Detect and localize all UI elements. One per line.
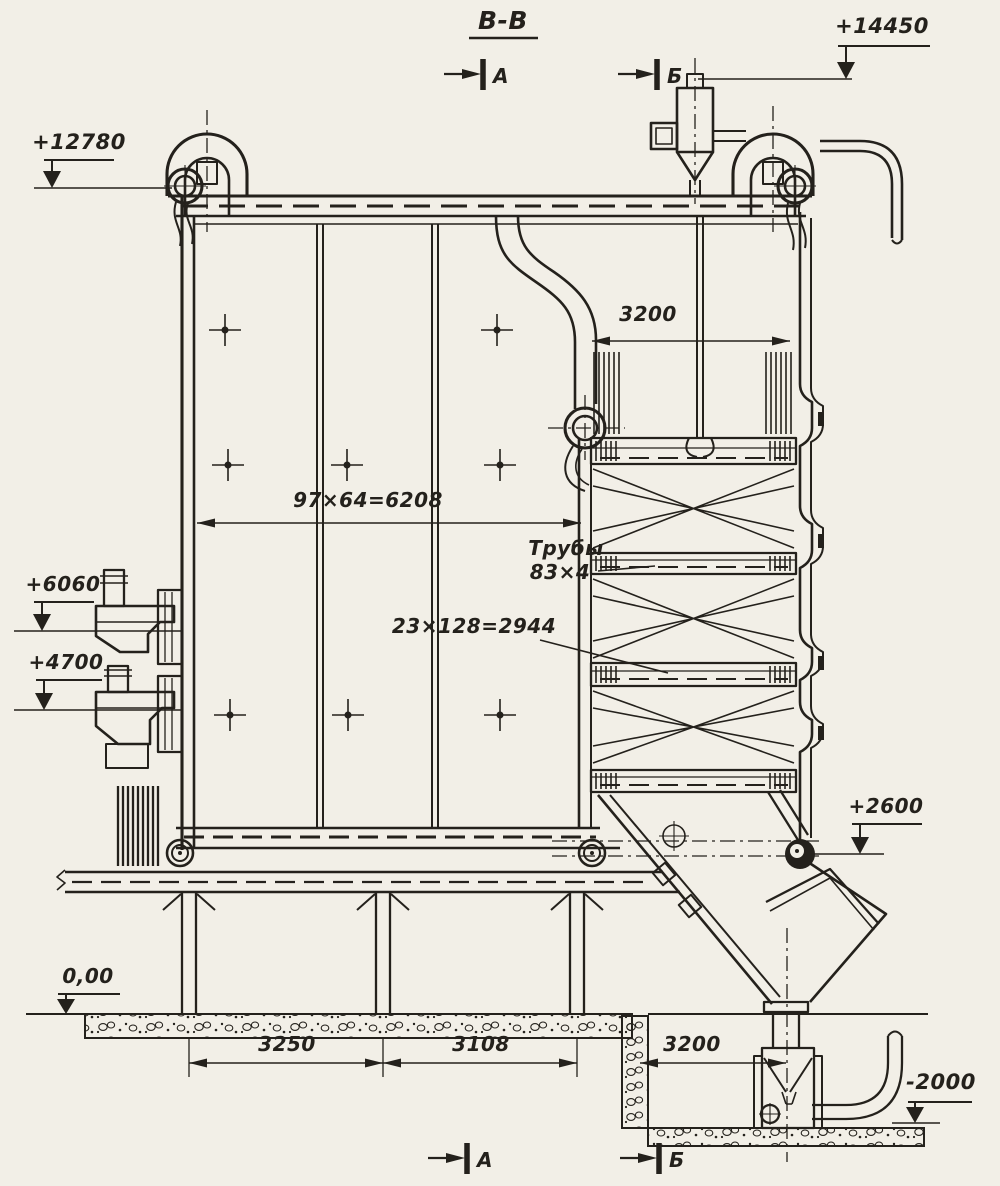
rear-membrane-wall [800, 212, 824, 845]
shaft-tube-hatch [594, 352, 791, 434]
dims-bottom: 3250 3108 3200 [189, 1032, 786, 1077]
ash-sluice [754, 1048, 822, 1128]
elevation-value: -2000 [906, 1070, 976, 1094]
elevation-value: +2600 [849, 794, 924, 818]
elevation-value: +14450 [835, 14, 929, 38]
elevation-zero: 0,00 [57, 964, 120, 1014]
section-letter-a: А [475, 1148, 493, 1172]
elevation-value: 0,00 [62, 964, 113, 988]
tube-axis-circle [659, 821, 689, 851]
section-letter-b: Б [667, 64, 683, 88]
dim-value: 23×128=2944 [392, 614, 556, 638]
support-columns [163, 892, 603, 1014]
section-mark-b-bottom: Б [620, 1143, 685, 1174]
top-beam [168, 196, 812, 224]
elevation-value: +4700 [29, 650, 104, 674]
tube-bank-braces [593, 469, 794, 763]
support-platform [57, 870, 680, 892]
burner-upper [96, 570, 182, 664]
tubes-label-line2: 83×4 [530, 560, 591, 584]
hanger-rod [686, 216, 713, 457]
dim-value: 97×64=6208 [293, 488, 443, 512]
steam-outlet-pipe [820, 141, 902, 244]
section-title: В-В [469, 6, 538, 38]
elevation-4700: +4700 [14, 650, 182, 710]
section-mark-a-bottom: А [428, 1143, 493, 1174]
ash-hopper [598, 790, 886, 1048]
dim-shaft-width: 3200 [592, 302, 790, 346]
elevation-12780: +12780 [32, 130, 172, 188]
section-mark-a-top: А [444, 59, 509, 90]
section-letter-a: А [491, 64, 509, 88]
dim-furnace-width: 97×64=6208 [197, 488, 581, 528]
ash-discharge-pipe [812, 1032, 902, 1120]
dim-span2: 3108 [452, 1032, 510, 1056]
dim-span3: 3200 [663, 1032, 721, 1056]
elevation-value: +6060 [26, 572, 101, 596]
elevation-2600: +2600 [810, 794, 923, 854]
boiler-section-drawing: В-В А Б А Б +14450 +12780 +6060 [0, 0, 1000, 1186]
dim-span1: 3250 [258, 1032, 316, 1056]
section-letter-b: Б [669, 1148, 685, 1172]
tubes-label-line1: Трубы [528, 536, 604, 560]
gas-outlet-s-pipe [496, 216, 596, 409]
section-mark-b-top: Б [618, 59, 683, 90]
lower-drum-mid [579, 840, 605, 866]
elevation-14450: +14450 [698, 14, 930, 79]
elevation-value: +12780 [32, 130, 126, 154]
burner-lower [96, 666, 182, 768]
elevation-minus-2000: -2000 [892, 1070, 976, 1123]
title-label: В-В [478, 6, 528, 35]
downcomer-bundle [118, 786, 158, 866]
drawing-canvas: В-В А Б А Б +14450 +12780 +6060 [0, 0, 1000, 1186]
tube-bank-headers [591, 438, 796, 792]
dim-value: 3200 [619, 302, 677, 326]
lower-drum-left [167, 840, 193, 866]
